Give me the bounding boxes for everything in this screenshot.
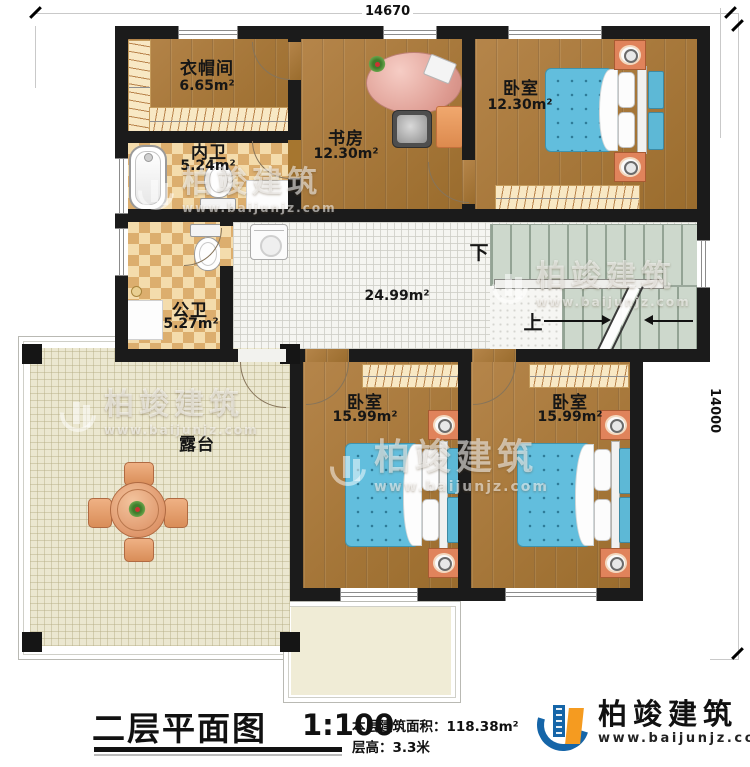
brand-logo-icon bbox=[536, 698, 590, 752]
terrace-chair bbox=[88, 498, 112, 528]
window bbox=[115, 158, 128, 214]
window bbox=[505, 588, 597, 601]
washing-machine bbox=[250, 224, 288, 260]
door-gap bbox=[238, 349, 286, 362]
floor-plan: 14670 14000 下 上 bbox=[0, 0, 750, 767]
window bbox=[178, 26, 238, 39]
room-area-bedroom-top: 12.30m² bbox=[487, 97, 552, 113]
brand-logo: 柏竣建筑 www.baijunjz.com bbox=[536, 698, 750, 752]
pillow bbox=[594, 499, 611, 541]
room-area-bedroom-left: 15.99m² bbox=[332, 409, 397, 425]
pillow bbox=[618, 112, 635, 148]
dimension-extension-left bbox=[35, 26, 36, 88]
stair-arrow-icon bbox=[602, 315, 611, 325]
computer-monitor bbox=[392, 110, 432, 148]
pillow bbox=[618, 72, 635, 108]
door-gap bbox=[305, 349, 349, 362]
bed-cushion bbox=[648, 112, 664, 150]
title-underline-shadow bbox=[94, 754, 342, 756]
window bbox=[383, 26, 437, 39]
terrace-pier bbox=[22, 632, 42, 652]
room-label-bedroom-top: 卧室 bbox=[503, 74, 539, 99]
nightstand bbox=[614, 152, 646, 182]
window bbox=[508, 26, 602, 39]
floor-area-text: 本层建筑面积：118.38m² bbox=[352, 717, 519, 738]
brand-name: 柏竣建筑 bbox=[598, 698, 750, 731]
plant-icon bbox=[368, 56, 386, 72]
stairs-upper-flight bbox=[490, 224, 699, 286]
stairs-down-label: 下 bbox=[469, 238, 488, 265]
bed-cushion bbox=[648, 71, 664, 109]
headboard bbox=[637, 66, 647, 154]
window bbox=[340, 588, 418, 601]
bed bbox=[517, 441, 630, 547]
room-area-study: 12.30m² bbox=[313, 146, 378, 162]
wardrobe bbox=[495, 185, 640, 210]
table-plant-icon bbox=[128, 501, 146, 517]
nightstand bbox=[428, 548, 460, 578]
logo-blue-tower bbox=[553, 705, 565, 737]
right-dimension-line bbox=[738, 13, 739, 660]
wall bbox=[115, 209, 710, 222]
dimension-extension-right bbox=[720, 8, 721, 138]
stair-arrow-icon bbox=[644, 315, 653, 325]
bathtub bbox=[129, 145, 167, 211]
wall bbox=[630, 349, 643, 601]
terrace-chair bbox=[124, 538, 154, 562]
stairs-up-label: 上 bbox=[523, 308, 542, 335]
window bbox=[697, 240, 710, 288]
wall bbox=[458, 349, 471, 601]
room-label-terrace: 露台 bbox=[179, 430, 215, 455]
wall bbox=[697, 26, 710, 362]
nightstand bbox=[614, 40, 646, 70]
title-underline bbox=[94, 747, 342, 752]
nightstand bbox=[600, 410, 632, 440]
window bbox=[115, 228, 128, 276]
room-area-bedroom-right: 15.99m² bbox=[537, 409, 602, 425]
bed-sheet bbox=[403, 444, 422, 546]
bed-sheet bbox=[599, 69, 618, 151]
terrace-chair bbox=[164, 498, 188, 528]
room-area-hallway: 24.99m² bbox=[364, 288, 429, 304]
wardrobe bbox=[128, 40, 151, 133]
floor-drain bbox=[131, 286, 142, 297]
porch-floor bbox=[291, 607, 451, 695]
wardrobe bbox=[362, 364, 462, 388]
dimension-label-right: 14000 bbox=[707, 385, 722, 436]
sink-counter bbox=[127, 300, 163, 340]
nightstand bbox=[600, 548, 632, 578]
bed bbox=[545, 66, 665, 152]
bed bbox=[345, 441, 458, 547]
brand-website: www.baijunjz.com bbox=[598, 731, 750, 746]
pillow bbox=[594, 449, 611, 491]
pillow bbox=[422, 449, 439, 491]
desk-chair bbox=[436, 106, 463, 148]
stair-direction-line bbox=[653, 320, 693, 322]
terrace-pier bbox=[280, 632, 300, 652]
door-gap bbox=[472, 349, 516, 362]
terrace-pier bbox=[22, 344, 42, 364]
page-title: 二层平面图 bbox=[92, 702, 267, 750]
room-area-public-bath: 5.27m² bbox=[163, 316, 218, 332]
dimension-extension-bottom bbox=[710, 659, 739, 660]
wardrobe bbox=[529, 364, 629, 388]
room-area-inner-bath: 5.24m² bbox=[180, 158, 235, 174]
pillow bbox=[422, 499, 439, 541]
nightstand bbox=[428, 410, 460, 440]
sink-counter bbox=[246, 180, 290, 212]
wall bbox=[290, 349, 303, 601]
floor-height-text: 层高：3.3米 bbox=[352, 738, 519, 759]
door-gap bbox=[220, 226, 233, 266]
bed-sheet bbox=[575, 444, 594, 546]
wall bbox=[115, 349, 710, 362]
room-label-cloakroom: 衣帽间 bbox=[180, 54, 234, 79]
wardrobe bbox=[149, 107, 290, 134]
dimension-label-top: 14670 bbox=[362, 4, 413, 19]
stair-direction-line bbox=[544, 320, 602, 322]
room-area-cloakroom: 6.65m² bbox=[179, 78, 234, 94]
